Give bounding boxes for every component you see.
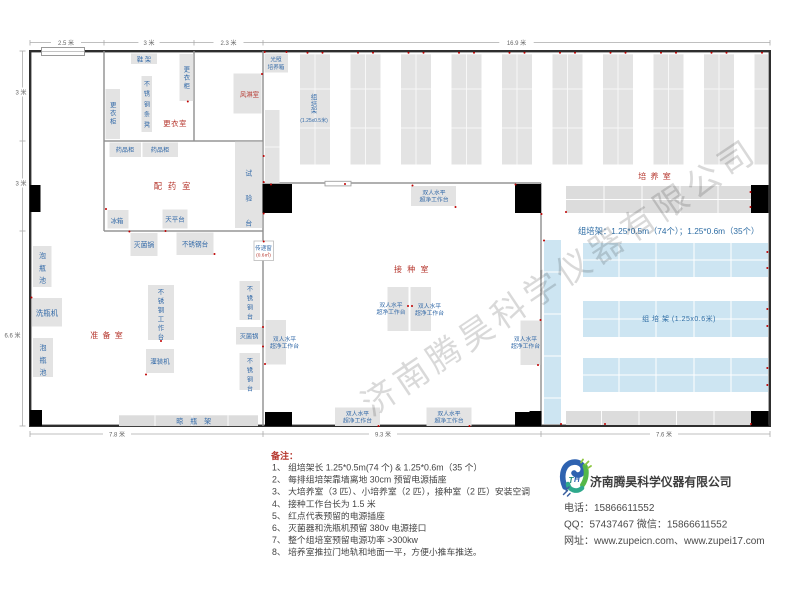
- svg-text:不锈钢台: 不锈钢台: [182, 240, 209, 249]
- svg-text:4、 接种工作台长为 1.5 米: 4、 接种工作台长为 1.5 米: [272, 498, 376, 509]
- svg-text:6、 灭菌器和洗瓶机预留 380v 电源接口: 6、 灭菌器和洗瓶机预留 380v 电源接口: [272, 522, 426, 533]
- svg-text:8、 培养室推拉门地轨和地面一平，方便小推车推送。: 8、 培养室推拉门地轨和地面一平，方便小推车推送。: [272, 546, 482, 557]
- svg-text:7.8 米: 7.8 米: [109, 431, 125, 439]
- svg-text:双人水平: 双人水平: [379, 301, 402, 309]
- svg-text:超净工作台: 超净工作台: [343, 417, 372, 425]
- svg-text:双人水平: 双人水平: [422, 189, 445, 197]
- svg-text:准 备 室: 准 备 室: [90, 330, 123, 340]
- svg-text:灌装机: 灌装机: [150, 357, 170, 366]
- svg-text:网址：www.zupeicn.com、www.zupei17: 网址：www.zupeicn.com、www.zupei17.com: [564, 534, 765, 547]
- svg-text:(1.25x0.5米): (1.25x0.5米): [300, 117, 328, 124]
- svg-text:双人水平: 双人水平: [437, 410, 460, 418]
- svg-text:电话：15866611552: 电话：15866611552: [564, 501, 655, 514]
- svg-text:泡瓶池: 泡瓶池: [39, 251, 46, 285]
- svg-text:灭菌锅: 灭菌锅: [134, 240, 155, 249]
- svg-text:组 培 架 (1.25x0.6米): 组 培 架 (1.25x0.6米): [642, 314, 716, 323]
- svg-text:鞋 架: 鞋 架: [137, 55, 152, 64]
- svg-text:6.6 米: 6.6 米: [4, 332, 20, 340]
- svg-text:3 米: 3 米: [15, 89, 26, 97]
- svg-text:2、 每排组培架靠墙离地 30cm 预留电源插座: 2、 每排组培架靠墙离地 30cm 预留电源插座: [272, 474, 447, 485]
- svg-text:7、 整个组培室预留电源功率 >300kw: 7、 整个组培室预留电源功率 >300kw: [272, 534, 419, 545]
- svg-text:药品柜: 药品柜: [151, 146, 170, 154]
- svg-text:超净工作台: 超净工作台: [415, 309, 444, 317]
- svg-text:风淋室: 风淋室: [240, 90, 260, 99]
- svg-text:9.3 米: 9.3 米: [375, 431, 391, 439]
- svg-text:双人水平: 双人水平: [346, 410, 369, 418]
- svg-text:药品柜: 药品柜: [116, 146, 135, 154]
- svg-text:超净工作台: 超净工作台: [270, 342, 299, 350]
- svg-text:3 米: 3 米: [15, 180, 26, 188]
- svg-text:5、 红点代表预留的电源插座: 5、 红点代表预留的电源插座: [272, 510, 385, 521]
- svg-text:3、 大培养室（3 匹）、小培养室（2 匹），接种室（2 匹: 3、 大培养室（3 匹）、小培养室（2 匹），接种室（2 匹）安装空调: [272, 486, 530, 497]
- svg-text:晾 瓶 架: 晾 瓶 架: [176, 417, 213, 426]
- svg-text:光照: 光照: [270, 56, 282, 64]
- svg-text:超净工作台: 超净工作台: [511, 342, 540, 350]
- svg-text:H: H: [574, 475, 580, 484]
- svg-text:天平台: 天平台: [165, 215, 185, 224]
- svg-text:QQ：57437467 微信：15866611552: QQ：57437467 微信：15866611552: [564, 518, 728, 531]
- svg-text:双人水平: 双人水平: [418, 302, 441, 310]
- svg-text:双人水平: 双人水平: [514, 335, 537, 343]
- svg-text:更衣柜: 更衣柜: [184, 66, 191, 90]
- svg-text:培 养 室: 培 养 室: [638, 171, 671, 181]
- svg-text:2.5 米: 2.5 米: [58, 39, 74, 47]
- svg-text:双人水平: 双人水平: [273, 335, 296, 343]
- svg-text:3 米: 3 米: [143, 39, 154, 47]
- svg-text:配 药 室: 配 药 室: [154, 181, 193, 191]
- svg-text:更衣室: 更衣室: [163, 118, 187, 128]
- svg-text:传递窗: 传递窗: [255, 244, 272, 252]
- svg-text:(0.6㎡): (0.6㎡): [256, 252, 271, 259]
- svg-text:冰箱: 冰箱: [111, 216, 124, 225]
- svg-text:更衣柜: 更衣柜: [110, 101, 117, 125]
- svg-text:泡瓶池: 泡瓶池: [40, 343, 47, 377]
- svg-text:培养箱: 培养箱: [268, 63, 285, 71]
- svg-text:济南腾昊科学仪器有限公司: 济南腾昊科学仪器有限公司: [590, 475, 732, 489]
- svg-text:接 种 室: 接 种 室: [394, 264, 430, 274]
- svg-text:超净工作台: 超净工作台: [435, 417, 464, 425]
- svg-text:2.3 米: 2.3 米: [220, 39, 236, 47]
- svg-text:备注：: 备注：: [270, 450, 298, 461]
- svg-text:组培架: 组培架: [311, 92, 318, 115]
- svg-text:1、 组培架长 1.25*0.5m(74 个) & 1.25: 1、 组培架长 1.25*0.5m(74 个) & 1.25*0.6m（35 个…: [272, 462, 482, 473]
- svg-text:16.9 米: 16.9 米: [507, 39, 526, 47]
- svg-text:超净工作台: 超净工作台: [420, 196, 449, 204]
- svg-text:7.6 米: 7.6 米: [656, 431, 672, 439]
- svg-text:洗瓶机: 洗瓶机: [36, 309, 59, 318]
- svg-text:灭菌锅: 灭菌锅: [240, 333, 259, 341]
- svg-text:超净工作台: 超净工作台: [377, 308, 406, 316]
